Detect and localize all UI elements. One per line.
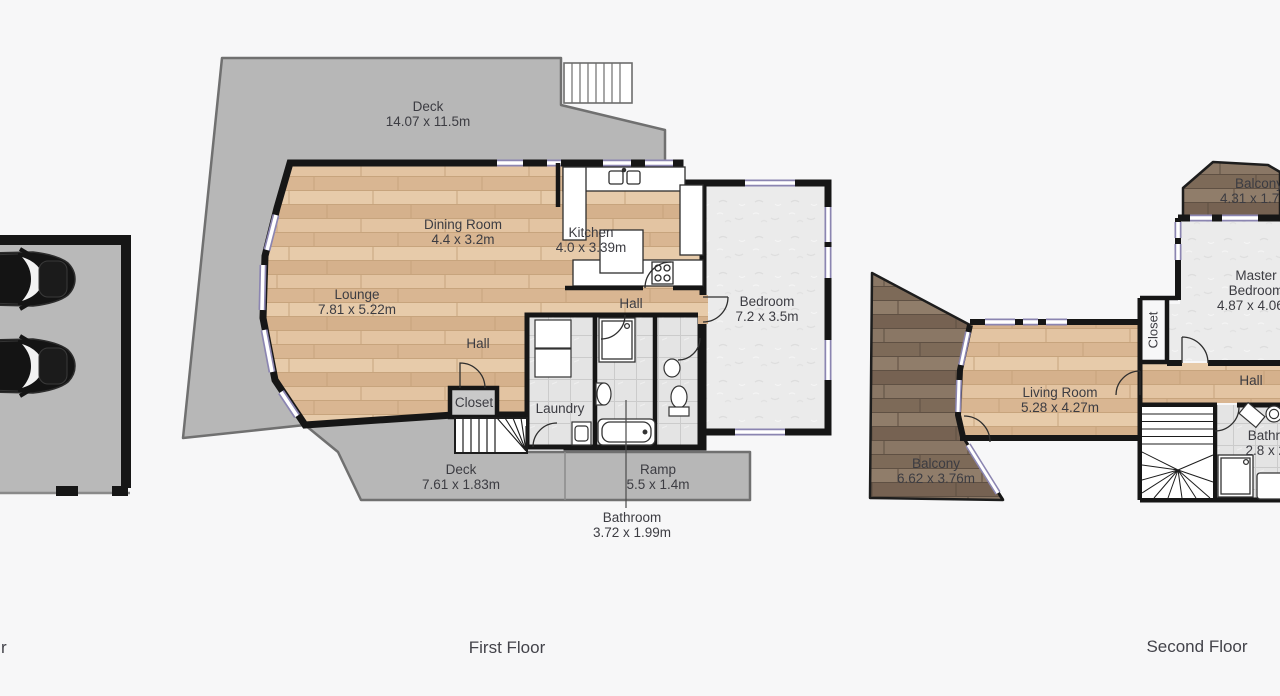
floor-title-first: First Floor: [469, 638, 546, 658]
garage-door-post: [56, 486, 78, 496]
room-label-closet-second: Closet: [1146, 312, 1161, 349]
shower-icon: [1218, 455, 1253, 497]
garage-door-post: [112, 486, 128, 496]
room-label-kitchen: Kitchen4.0 x 3.39m: [556, 225, 627, 255]
shower-icon: [599, 318, 635, 362]
room-label-bathroom-first: Bathroom3.72 x 1.99m: [593, 510, 671, 540]
room-label-dining: Dining Room4.4 x 3.2m: [424, 217, 502, 247]
floor-title-second: Second Floor: [1146, 637, 1247, 657]
room-label-hall-main: Hall: [619, 296, 642, 311]
garage-plan: [0, 230, 140, 502]
floor-title-garage-partial: r: [1, 638, 7, 658]
room-label-ramp: Ramp5.5 x 1.4m: [626, 462, 689, 492]
room-label-hall-second: Hall: [1239, 373, 1262, 388]
room-label-master-bedroom: Master Bedroom4.87 x 4.06m: [1213, 268, 1280, 313]
room-label-balcony-top: Balcony4.31 x 1.72m: [1220, 176, 1280, 206]
room-label-bedroom: Bedroom7.2 x 3.5m: [735, 294, 798, 324]
first-floor-plan: [175, 50, 847, 512]
staircase-icon: [455, 418, 527, 453]
room-label-balcony-left: Balcony6.62 x 3.76m: [897, 456, 975, 486]
vanity-icon: [1257, 473, 1280, 499]
room-label-closet-first: Closet: [455, 395, 493, 410]
sink-icon: [664, 359, 680, 377]
room-label-deck-bottom: Deck7.61 x 1.83m: [422, 462, 500, 492]
room-label-living-room: Living Room5.28 x 4.27m: [1021, 385, 1099, 415]
toilet-icon: [669, 386, 689, 416]
room-label-hall-left: Hall: [466, 336, 489, 351]
room-label-bathroom-second: Bathroom2.8 x 2.6m: [1245, 428, 1280, 458]
garage: [0, 238, 130, 496]
door-gap: [698, 295, 708, 324]
kitchen-counter: [680, 185, 703, 255]
room-label-laundry: Laundry: [536, 401, 585, 416]
staircase-icon: [1142, 407, 1213, 498]
second-floor-plan: [860, 160, 1280, 505]
sink-icon: [596, 383, 611, 405]
external-stairs-icon: [564, 63, 632, 103]
living-room-floor: [958, 324, 1138, 438]
room-label-lounge: Lounge7.81 x 5.22m: [318, 287, 396, 317]
laundry-bath-block: [527, 315, 700, 447]
room-label-deck-top: Deck14.07 x 11.5m: [386, 99, 471, 129]
